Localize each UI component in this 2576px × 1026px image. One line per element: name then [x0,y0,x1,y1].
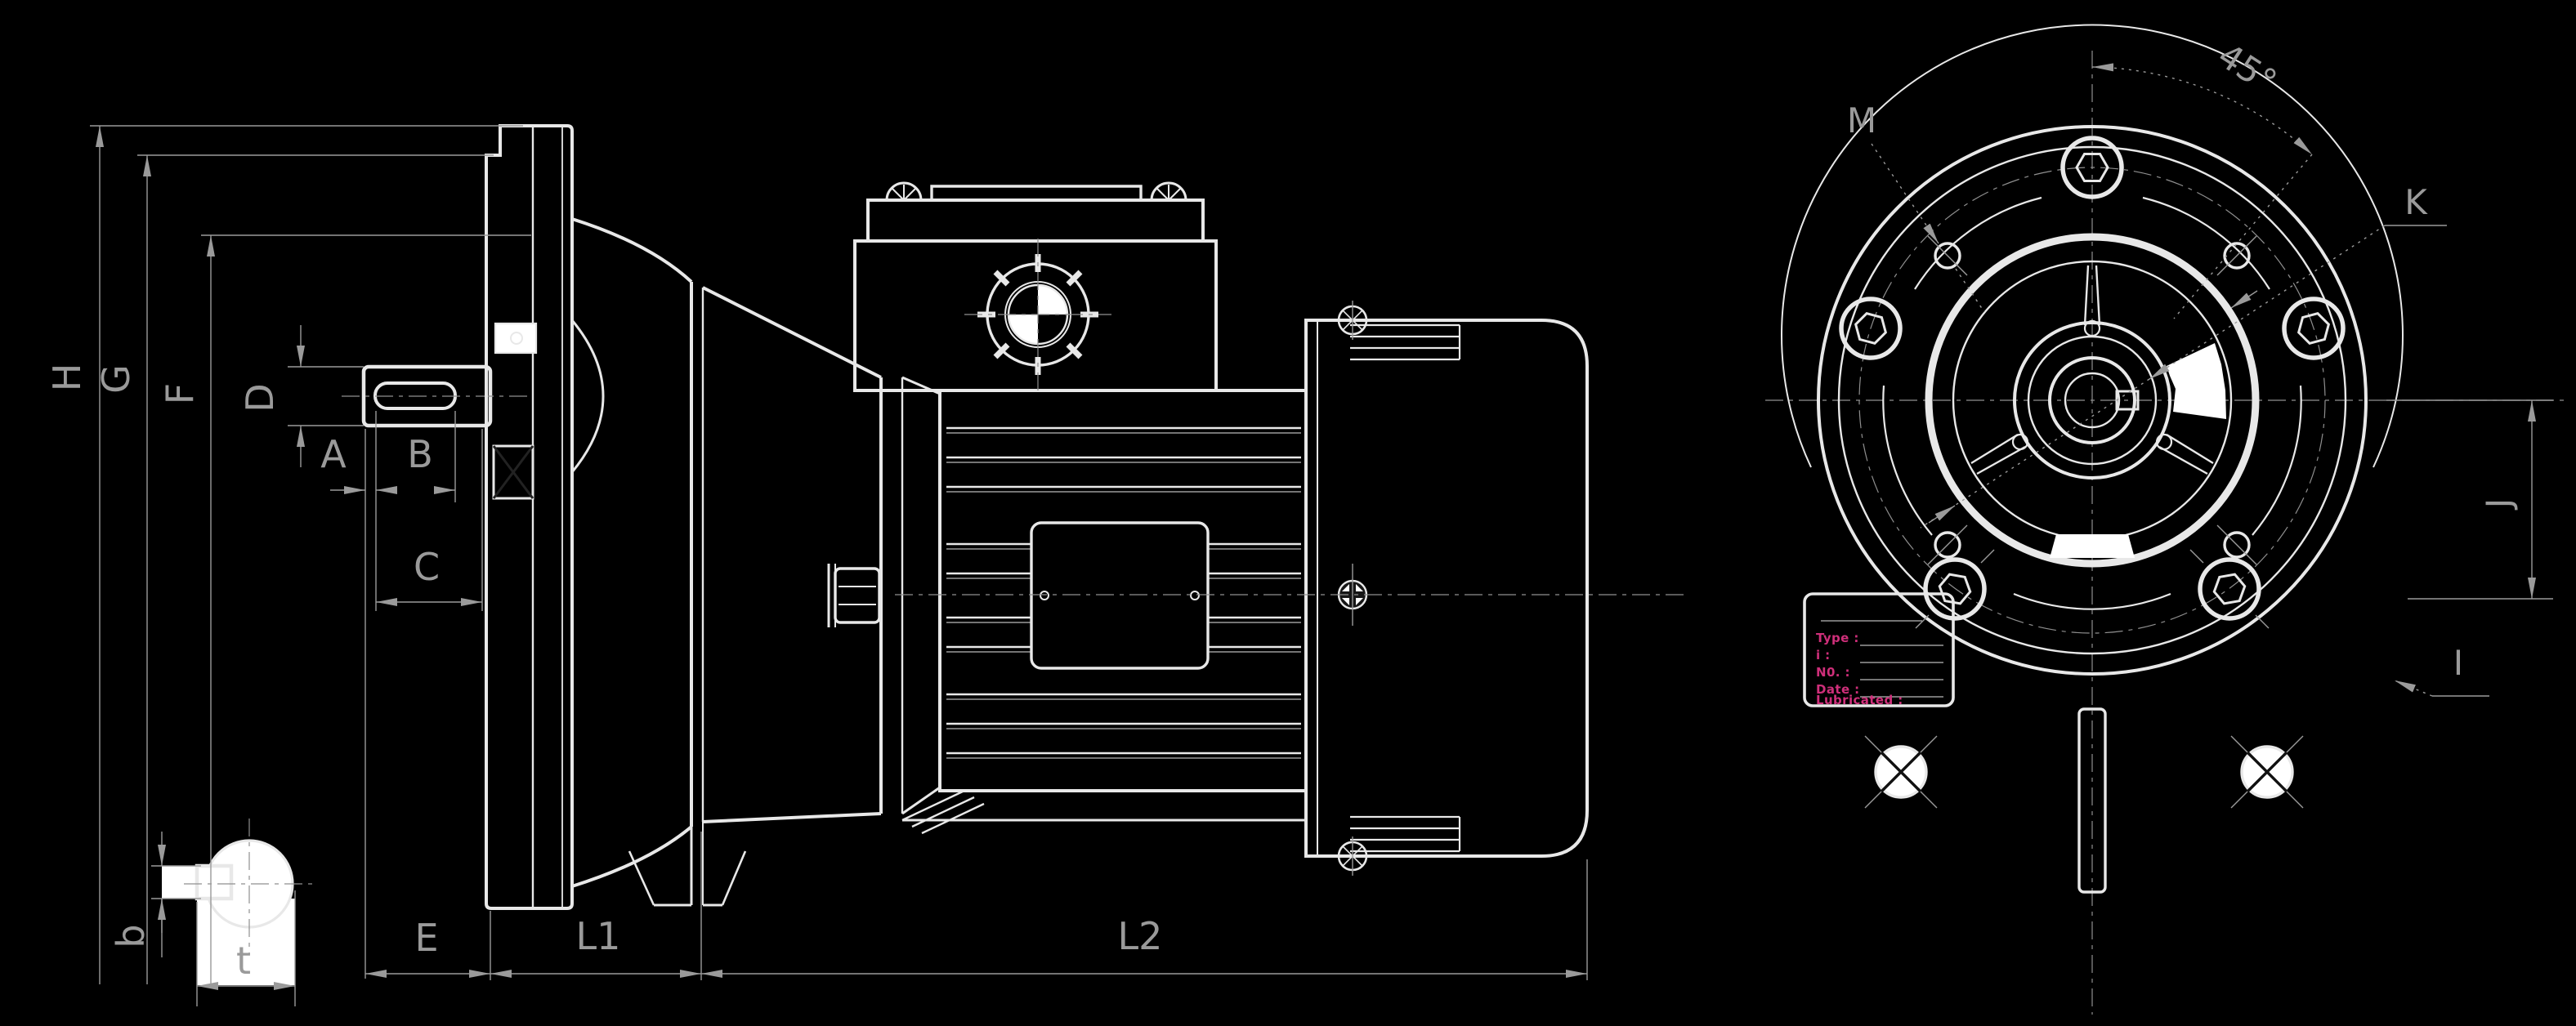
dim-label-I: I [2453,643,2463,683]
cable-gland-center-mark-icon [964,239,1111,390]
motor-side [855,183,1688,876]
hex-bolt-icon [2190,550,2269,628]
gearbox-housing [486,126,902,908]
fan-cover [1306,301,1587,876]
terminal-box [855,183,1216,390]
side-view: b t [45,126,1688,1006]
output-shaft [342,367,530,426]
flange-bolt-icon [829,564,879,627]
mounting-rail [902,791,1306,833]
dim-label-J: J [2479,498,2519,511]
dim-label-G: G [94,364,138,394]
housing-foot [629,822,745,905]
dim-label-B: B [407,432,433,476]
dim-label-M: M [1847,100,1876,141]
nameplate-field-no: N0. : [1816,665,1850,680]
dim-label-H: H [45,364,89,392]
angle-label: 45° [2211,35,2283,102]
nameplate-field-ratio: i : [1816,648,1831,662]
motor-nameplate [1031,523,1208,668]
dim-label-F: F [158,383,202,404]
dim-label-A: A [320,432,347,476]
dim-label-D: D [238,383,282,412]
key-section-detail: b t [109,819,315,1006]
section-wedge [2167,343,2226,419]
dim-label-t: t [236,939,251,983]
foot-hole-icon [2231,736,2303,808]
hole-icon [2217,236,2256,275]
dim-label-L2: L2 [1118,914,1163,958]
cover-screw-icon [1147,183,1191,200]
cover-screw-icon [882,183,926,200]
dim-label-K: K [2404,182,2428,222]
dim-label-E: E [414,916,438,960]
hole-icon [1928,236,1967,275]
section-wedge [2050,534,2135,558]
flange-nameplate: Type : i : N0. : Date : Lubricated : [1805,594,1953,707]
drawing-canvas: b t [0,0,2576,1026]
flange-view: Type : i : N0. : Date : Lubricated : 45°… [1765,25,2566,1015]
dim-label-b: b [109,924,153,948]
nameplate-field-type: Type : [1816,631,1859,645]
dim-label-C: C [414,545,440,589]
engineering-drawing: b t [0,0,2576,1026]
foot-hole-icon [1865,736,1937,808]
cooling-fins [946,428,1301,758]
dim-label-L1: L1 [576,914,621,958]
nameplate-field-lubricated: Lubricated : [1816,693,1903,707]
hex-bolt-icon [1916,550,1994,628]
